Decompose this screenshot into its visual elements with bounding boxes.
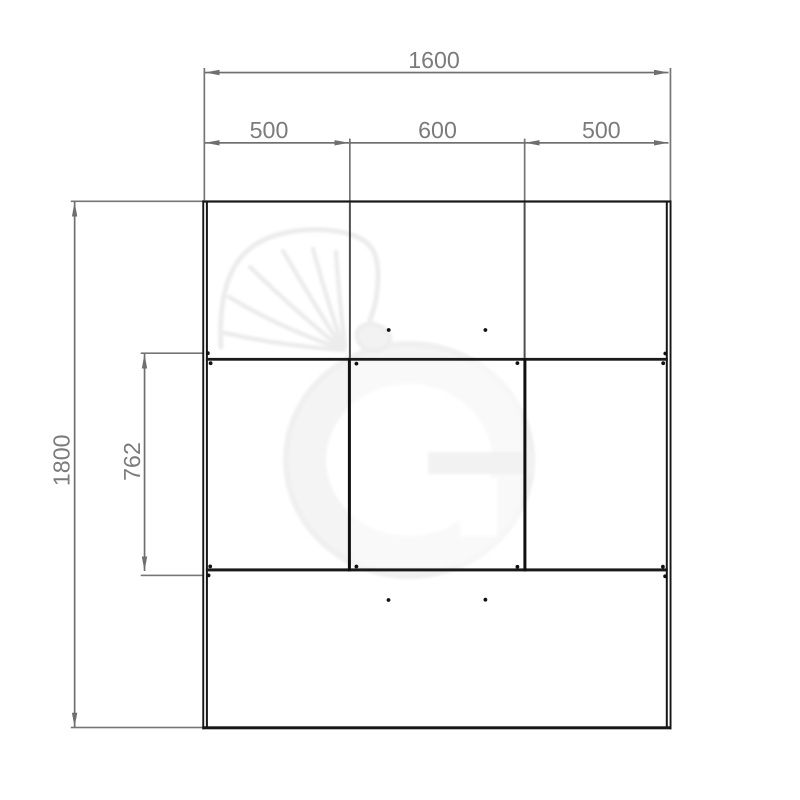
svg-text:762: 762 bbox=[119, 442, 145, 481]
svg-text:500: 500 bbox=[582, 117, 621, 143]
svg-text:1600: 1600 bbox=[408, 47, 460, 73]
svg-text:600: 600 bbox=[418, 117, 457, 143]
svg-text:500: 500 bbox=[250, 117, 289, 143]
svg-text:1800: 1800 bbox=[49, 435, 75, 487]
